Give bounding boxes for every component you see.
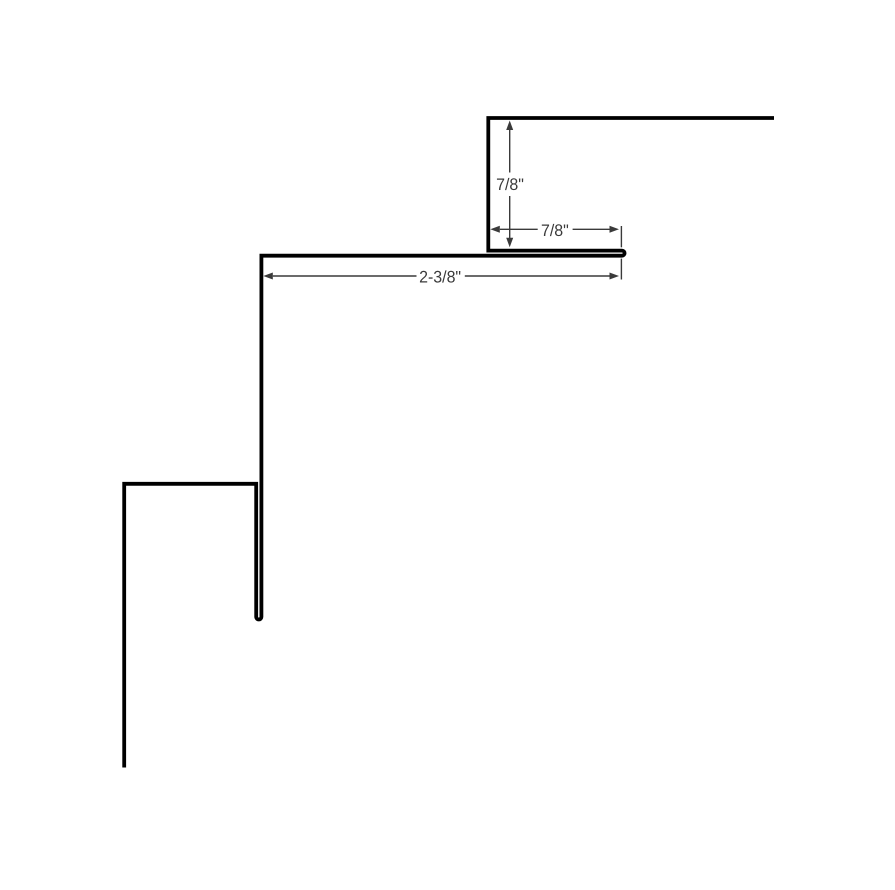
svg-text:7/8": 7/8" xyxy=(496,175,524,194)
svg-text:7/8": 7/8" xyxy=(541,221,569,240)
svg-text:2-3/8": 2-3/8" xyxy=(419,268,461,287)
